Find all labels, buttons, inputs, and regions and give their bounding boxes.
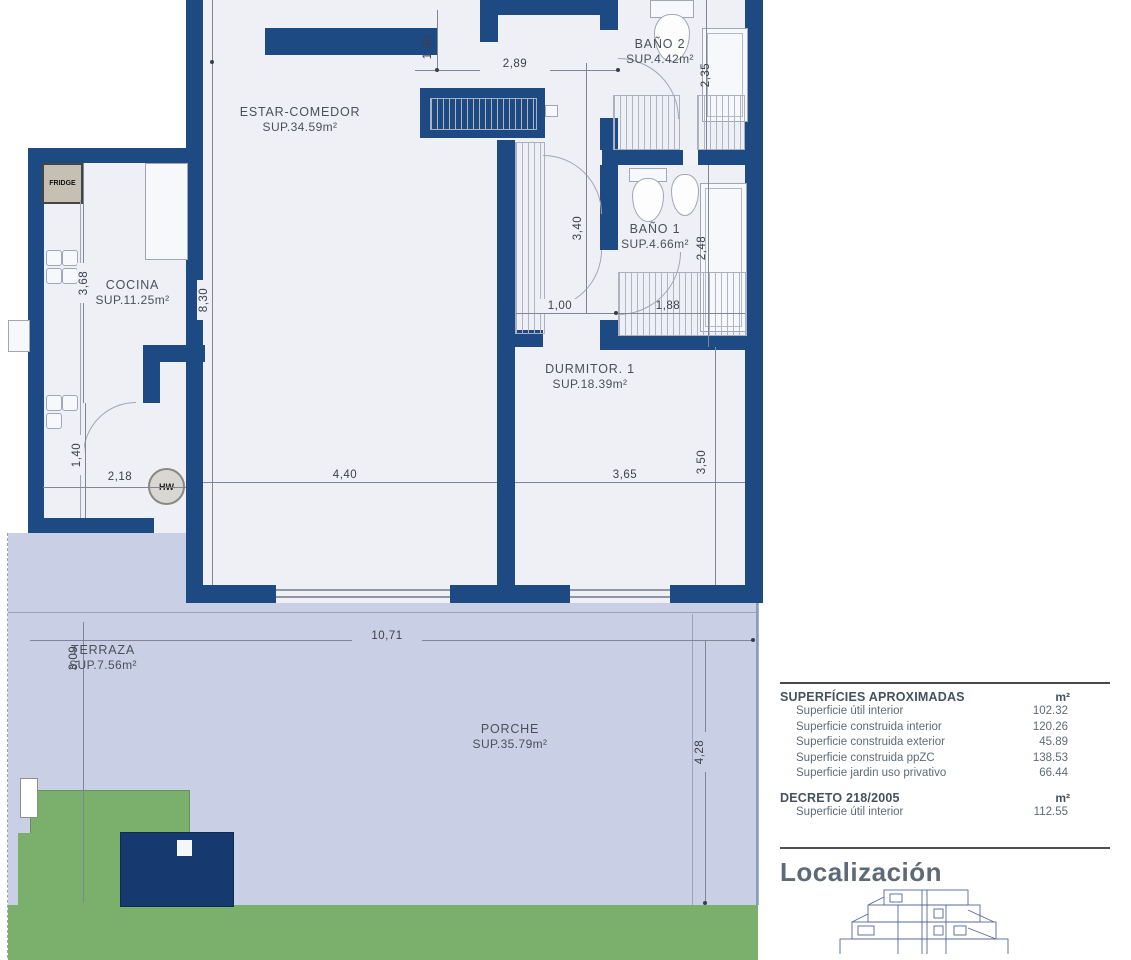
superficies-unit: m² xyxy=(1055,690,1110,704)
fridge: FRIDGE xyxy=(42,163,83,204)
info-panel: SUPERFÍCIES APROXIMADAS m² Superficie út… xyxy=(780,682,1110,888)
wall-south-c xyxy=(670,585,763,603)
localizacion-title: Localización xyxy=(780,857,1110,888)
wall-living-dorm xyxy=(497,140,515,603)
superficies-row: Superficie construida interior 120.26 xyxy=(780,720,1110,736)
superficies-row: Superficie construida exterior 45.89 xyxy=(780,735,1110,751)
dim-label: 3,40 xyxy=(571,208,585,248)
room-area: SUP.34.59m² xyxy=(230,120,370,134)
window-line xyxy=(570,589,670,591)
room-area: SUP.35.79m² xyxy=(450,737,570,751)
sink-basin xyxy=(62,395,78,411)
window-line xyxy=(276,596,450,598)
dim-line xyxy=(516,313,616,314)
dim-label: 3,68 xyxy=(77,263,91,303)
wall-kitchen-top xyxy=(28,148,203,163)
dim-line xyxy=(515,482,745,483)
room-area: SUP.18.39m² xyxy=(530,377,650,391)
garden-upper-left xyxy=(30,790,190,835)
wall-bath2-west-up xyxy=(600,0,618,30)
dim-line xyxy=(212,0,213,585)
dim-line xyxy=(586,63,587,313)
wall-hall-top xyxy=(492,0,602,15)
row-label: Superficie útil interior xyxy=(780,704,903,720)
room-label-estar: ESTAR-COMEDOR SUP.34.59m² xyxy=(230,105,370,134)
dim-tick xyxy=(210,60,214,64)
window-line xyxy=(570,596,670,598)
room-area: SUP.4.66m² xyxy=(605,237,705,251)
outside-mask xyxy=(0,0,186,148)
wall-closet1-south xyxy=(600,335,763,350)
wall-window-notch xyxy=(8,320,30,352)
window-line xyxy=(276,589,450,591)
dim-label: 4,28 xyxy=(693,732,707,772)
garden-left xyxy=(18,833,120,905)
porch-right-edge xyxy=(756,603,759,905)
room-label-porche: PORCHE SUP.35.79m² xyxy=(450,722,570,751)
kitchen-cabinet xyxy=(145,163,188,260)
room-label-bano2: BAÑO 2 SUP.4.42m² xyxy=(610,37,710,66)
stove-burner xyxy=(46,268,62,284)
wall-kitchen-west xyxy=(28,148,44,533)
dim-tick xyxy=(435,68,439,72)
wardrobe-top-tab xyxy=(545,105,558,117)
row-label: Superficie construida interior xyxy=(780,720,942,736)
decreto-title: DECRETO 218/2005 xyxy=(780,791,900,805)
room-name: PORCHE xyxy=(450,722,570,737)
dim-line xyxy=(203,482,497,483)
shower-floor-bath2-right xyxy=(697,95,745,150)
row-value: 138.53 xyxy=(1033,751,1110,767)
garden-corner-detail xyxy=(20,778,38,818)
fridge-label: FRIDGE xyxy=(49,180,75,187)
panel-top-rule xyxy=(780,682,1110,684)
dim-line xyxy=(85,403,86,518)
row-value: 120.26 xyxy=(1033,720,1110,736)
dim-label: 1,40 xyxy=(70,435,84,475)
row-label: Superficie construida ppZC xyxy=(780,751,935,767)
dim-label: 1,00 xyxy=(540,299,580,313)
wall-south-a xyxy=(186,585,276,603)
dim-label: 3,50 xyxy=(695,442,709,482)
room-name: DURMITOR. 1 xyxy=(530,362,650,377)
stove-burner xyxy=(62,250,78,266)
porch-top-line xyxy=(8,612,756,613)
row-label: Superficie útil interior xyxy=(780,805,903,821)
row-value: 45.89 xyxy=(1039,735,1110,751)
wardrobe-top-interior xyxy=(430,98,537,130)
dim-label: 2,35 xyxy=(699,55,713,95)
stove-burner xyxy=(46,250,62,266)
dim-tick xyxy=(703,901,707,905)
building-section-sketch xyxy=(838,888,1028,954)
row-value: 112.55 xyxy=(1034,805,1110,821)
bath-divider-door xyxy=(683,150,698,165)
superficies-header: SUPERFÍCIES APROXIMADAS m² xyxy=(780,690,1110,704)
dim-label: 3,65 xyxy=(600,468,650,482)
dim-label: 2,18 xyxy=(95,470,145,484)
row-value: 102.32 xyxy=(1033,704,1110,720)
wall-living-top xyxy=(265,28,437,55)
room-label-dorm1: DURMITOR. 1 SUP.18.39m² xyxy=(530,362,650,391)
floorplan-canvas: FRIDGE HW BAÑO 2 SUP.4.42m² xyxy=(0,0,1131,960)
dim-tick xyxy=(614,311,618,315)
room-area: SUP.4.42m² xyxy=(610,52,710,66)
row-value: 66.44 xyxy=(1039,766,1110,782)
row-label: Superficie jardin uso privativo xyxy=(780,766,946,782)
dim-line xyxy=(618,313,745,314)
dim-label: 1,00 xyxy=(421,27,435,67)
dim-label: 3,09 xyxy=(67,638,81,678)
room-name: BAÑO 2 xyxy=(610,37,710,52)
room-name: BAÑO 1 xyxy=(605,222,705,237)
dim-label: 4,40 xyxy=(320,468,370,482)
superficies-row: Superficie construida ppZC 138.53 xyxy=(780,751,1110,767)
dim-label: 1,88 xyxy=(648,299,688,313)
decreto-unit: m² xyxy=(1055,791,1110,805)
room-label-bano1: BAÑO 1 SUP.4.66m² xyxy=(605,222,705,251)
planter-drain xyxy=(177,840,192,856)
porch-zone xyxy=(186,603,758,905)
dim-line xyxy=(43,487,186,488)
decreto-header: DECRETO 218/2005 m² xyxy=(780,791,1110,805)
wall-kitchen-south xyxy=(28,518,154,533)
dim-label: 8,30 xyxy=(197,280,211,320)
decreto-row: Superficie útil interior 112.55 xyxy=(780,805,1110,821)
plot-boundary-dashed xyxy=(7,533,8,958)
superficies-title: SUPERFÍCIES APROXIMADAS xyxy=(780,690,965,704)
sink-basin xyxy=(46,413,62,429)
dim-label: 10,71 xyxy=(352,629,422,643)
sink-basin xyxy=(46,395,62,411)
dim-line xyxy=(437,10,438,70)
room-name: ESTAR-COMEDOR xyxy=(230,105,370,120)
dim-line xyxy=(715,347,716,585)
dim-label: 2,89 xyxy=(480,57,550,71)
superficies-row: Superficie jardin uso privativo 66.44 xyxy=(780,766,1110,782)
panel-mid-rule xyxy=(780,847,1110,849)
dim-tick xyxy=(616,68,620,72)
row-label: Superficie construida exterior xyxy=(780,735,945,751)
wall-stub-v xyxy=(143,345,160,403)
garden-bottom-band xyxy=(8,905,758,960)
dim-tick xyxy=(751,638,755,642)
superficies-row: Superficie útil interior 102.32 xyxy=(780,704,1110,720)
dim-label: 2,48 xyxy=(695,228,709,268)
dim-line xyxy=(705,640,706,905)
